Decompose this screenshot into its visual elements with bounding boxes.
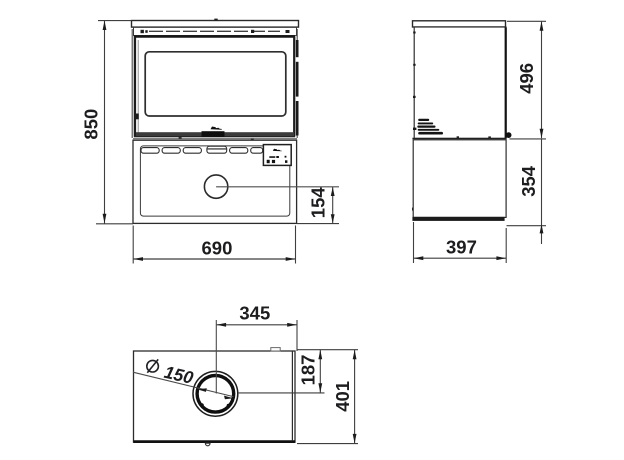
svg-text:354: 354: [518, 165, 539, 197]
svg-text:345: 345: [239, 303, 270, 324]
svg-text:850: 850: [81, 109, 102, 140]
svg-text:690: 690: [202, 237, 233, 258]
svg-text:401: 401: [332, 381, 353, 412]
svg-text:154: 154: [307, 187, 328, 219]
svg-text:187: 187: [298, 355, 319, 386]
svg-text:496: 496: [516, 63, 537, 94]
svg-text:397: 397: [446, 236, 477, 257]
